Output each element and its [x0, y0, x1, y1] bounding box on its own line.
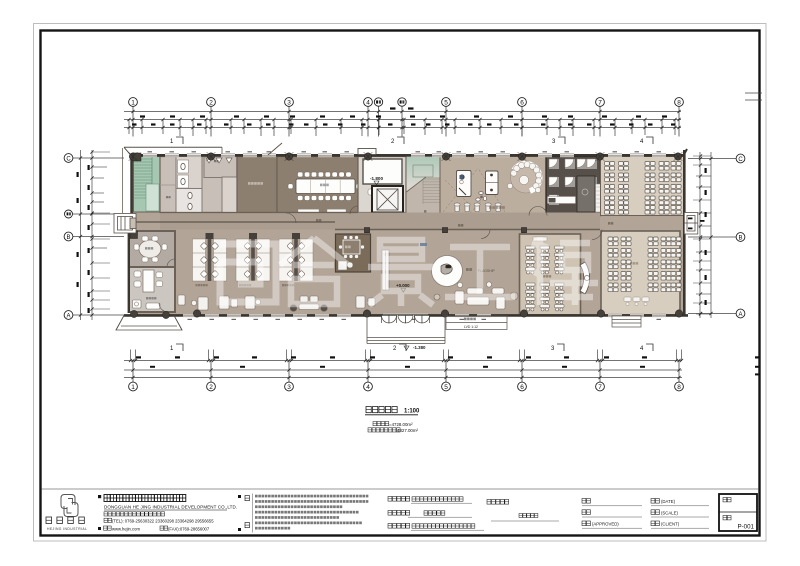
svg-text:-1.380: -1.380 — [413, 345, 426, 350]
svg-text:+0.000: +0.000 — [396, 283, 410, 288]
svg-text:(FAX):0769-28656007: (FAX):0769-28656007 — [168, 526, 210, 531]
svg-text:A: A — [66, 313, 70, 319]
svg-text:(APPROVED): (APPROVED) — [592, 522, 619, 527]
svg-text:2: 2 — [209, 384, 213, 391]
svg-text:1: 1 — [131, 99, 135, 106]
svg-text:www.hejin.com: www.hejin.com — [112, 526, 140, 531]
svg-text:=4728.00m²: =4728.00m² — [389, 422, 413, 427]
svg-text:1: 1 — [131, 384, 135, 391]
svg-text:HEJING INDUSTRIAL: HEJING INDUSTRIAL — [47, 527, 87, 531]
svg-text:6: 6 — [520, 99, 524, 106]
svg-text:8: 8 — [677, 384, 681, 391]
svg-text:3: 3 — [287, 384, 291, 391]
svg-text:5: 5 — [444, 99, 448, 106]
svg-text:4827.00m²: 4827.00m² — [397, 428, 419, 433]
svg-text:5: 5 — [444, 384, 448, 391]
svg-text:8: 8 — [677, 99, 681, 106]
svg-text:1:100: 1:100 — [404, 409, 420, 415]
svg-text:7: 7 — [598, 384, 602, 391]
svg-text:(DATE): (DATE) — [661, 499, 676, 504]
svg-text:B: B — [738, 235, 742, 241]
svg-text:C: C — [738, 157, 743, 163]
svg-text:A: A — [738, 312, 742, 318]
svg-text:4: 4 — [366, 99, 370, 106]
svg-text:(CLIENT): (CLIENT) — [661, 522, 680, 527]
svg-text:6: 6 — [520, 384, 524, 391]
svg-text:(SCALE): (SCALE) — [661, 510, 679, 515]
svg-text:3: 3 — [287, 99, 291, 106]
svg-text:C: C — [66, 156, 71, 162]
svg-text:2: 2 — [209, 99, 213, 106]
svg-text:DONGGUAN HE JING INDUSTRIAL DE: DONGGUAN HE JING INDUSTRIAL DEVELOPMENT … — [104, 505, 237, 510]
svg-text:LVD 1:12: LVD 1:12 — [464, 325, 478, 329]
svg-text:7: 7 — [598, 99, 602, 106]
svg-text:4: 4 — [366, 384, 370, 391]
svg-text:P-001: P-001 — [737, 524, 754, 531]
svg-text:B: B — [66, 235, 70, 241]
svg-text:(TEL): 0769-25630322 23360298: (TEL): 0769-25630322 23360298 23364298 2… — [112, 518, 214, 523]
svg-text:-1.800: -1.800 — [370, 176, 383, 181]
